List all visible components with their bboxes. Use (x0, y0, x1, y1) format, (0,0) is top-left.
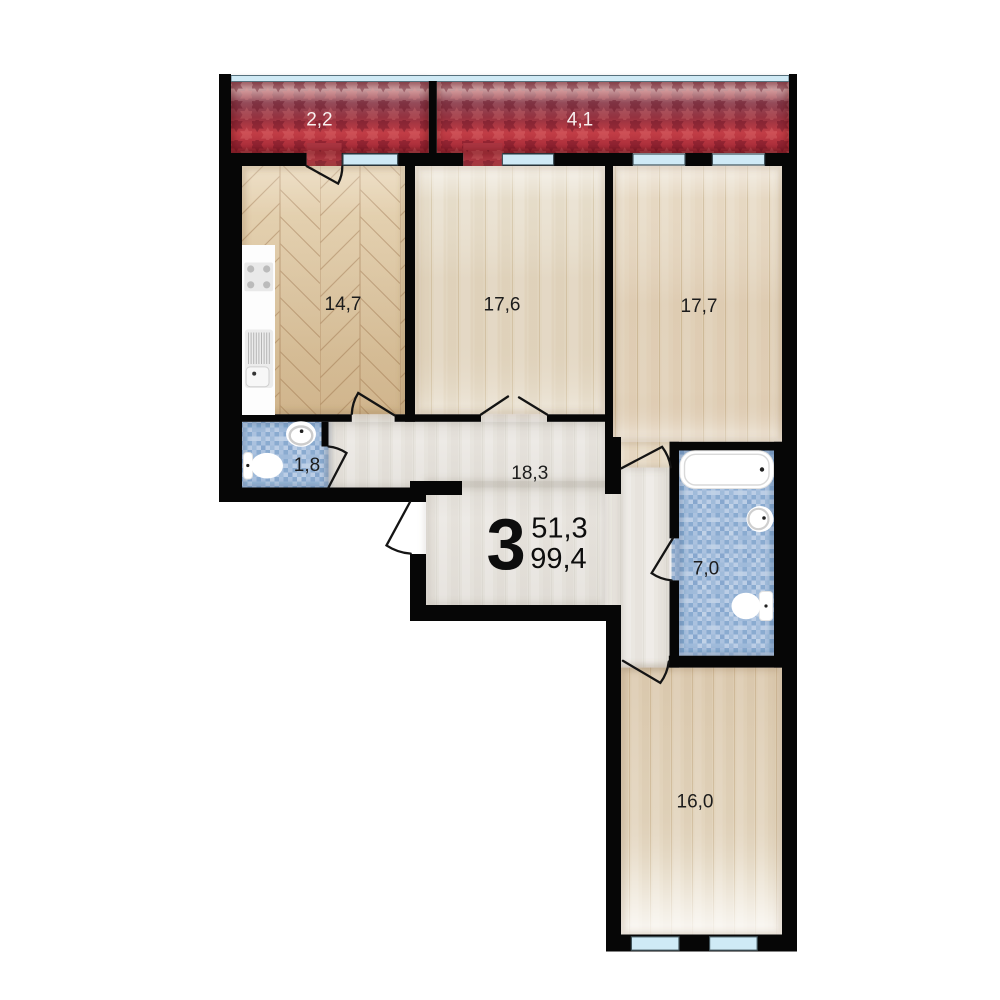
svg-text:51,3: 51,3 (531, 512, 587, 544)
svg-text:17,6: 17,6 (484, 295, 521, 316)
svg-text:7,0: 7,0 (693, 559, 719, 580)
svg-text:17,7: 17,7 (681, 296, 718, 317)
svg-text:3: 3 (487, 504, 526, 585)
svg-text:99,4: 99,4 (530, 543, 586, 575)
svg-text:16,0: 16,0 (677, 792, 714, 813)
svg-text:2,2: 2,2 (306, 110, 332, 131)
svg-text:14,7: 14,7 (325, 294, 362, 315)
svg-text:18,3: 18,3 (511, 463, 548, 484)
svg-text:4,1: 4,1 (567, 109, 593, 130)
svg-text:1,8: 1,8 (294, 455, 320, 476)
